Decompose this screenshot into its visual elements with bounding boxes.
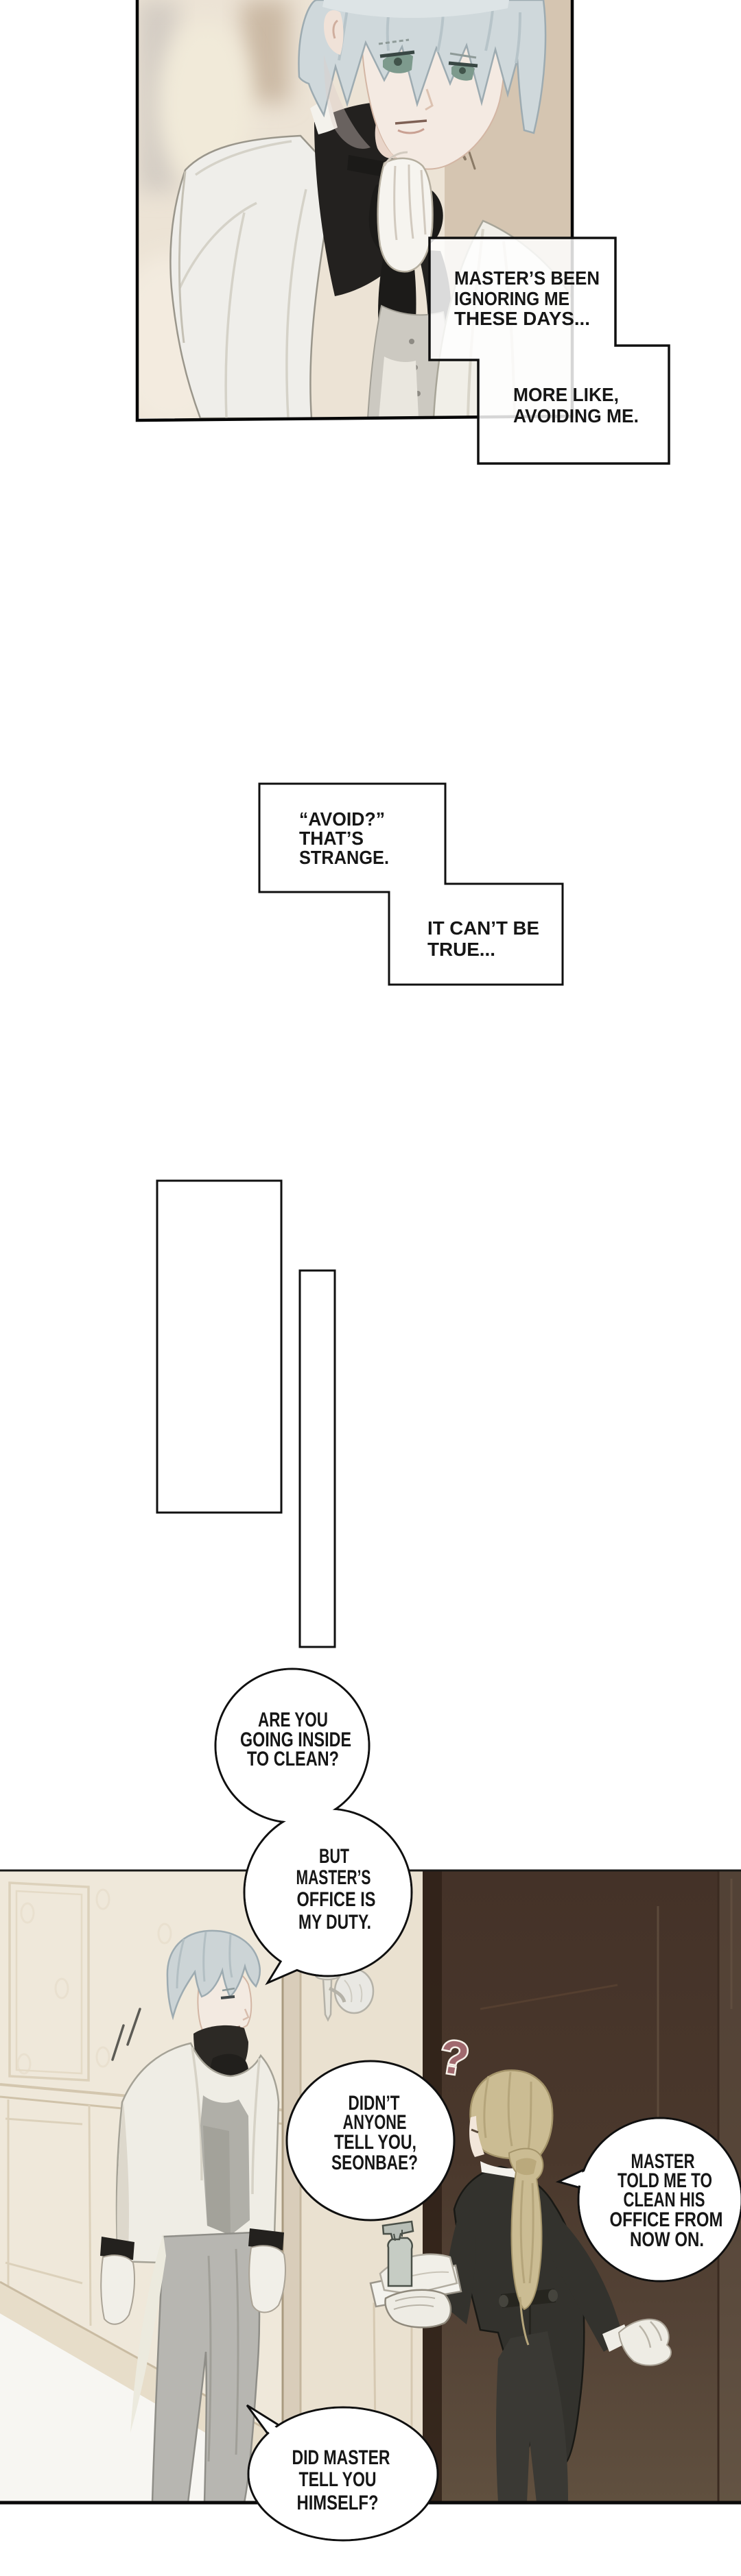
svg-text:MASTER’S BEEN: MASTER’S BEEN [454,267,600,289]
svg-text:MY DUTY.: MY DUTY. [298,1911,371,1934]
svg-text:IGNORING ME: IGNORING ME [454,288,569,309]
svg-text:TELL YOU,: TELL YOU, [334,2131,416,2154]
svg-text:MORE LIKE,: MORE LIKE, [513,384,619,405]
svg-text:OFFICE IS: OFFICE IS [297,1888,376,1911]
svg-text:STRANGE.: STRANGE. [299,847,389,868]
svg-text:DID MASTER: DID MASTER [292,2446,390,2469]
svg-text:TO CLEAN?: TO CLEAN? [247,1748,339,1770]
svg-text:TELL YOU: TELL YOU [299,2468,377,2491]
svg-text:BUT: BUT [319,1845,349,1868]
svg-text:“AVOID?”: “AVOID?” [299,808,385,830]
svg-text:NOW ON.: NOW ON. [630,2228,704,2251]
svg-text:AVOIDING ME.: AVOIDING ME. [513,405,639,426]
svg-text:IT CAN’T BE: IT CAN’T BE [427,917,539,939]
svg-text:TRUE...: TRUE... [427,939,495,960]
svg-text:MASTER’S: MASTER’S [296,1866,371,1889]
svg-text:SEONBAE?: SEONBAE? [331,2152,418,2174]
svg-text:THAT’S: THAT’S [299,828,364,849]
svg-text:HIMSELF?: HIMSELF? [297,2492,379,2514]
svg-text:THESE DAYS...: THESE DAYS... [454,308,590,329]
